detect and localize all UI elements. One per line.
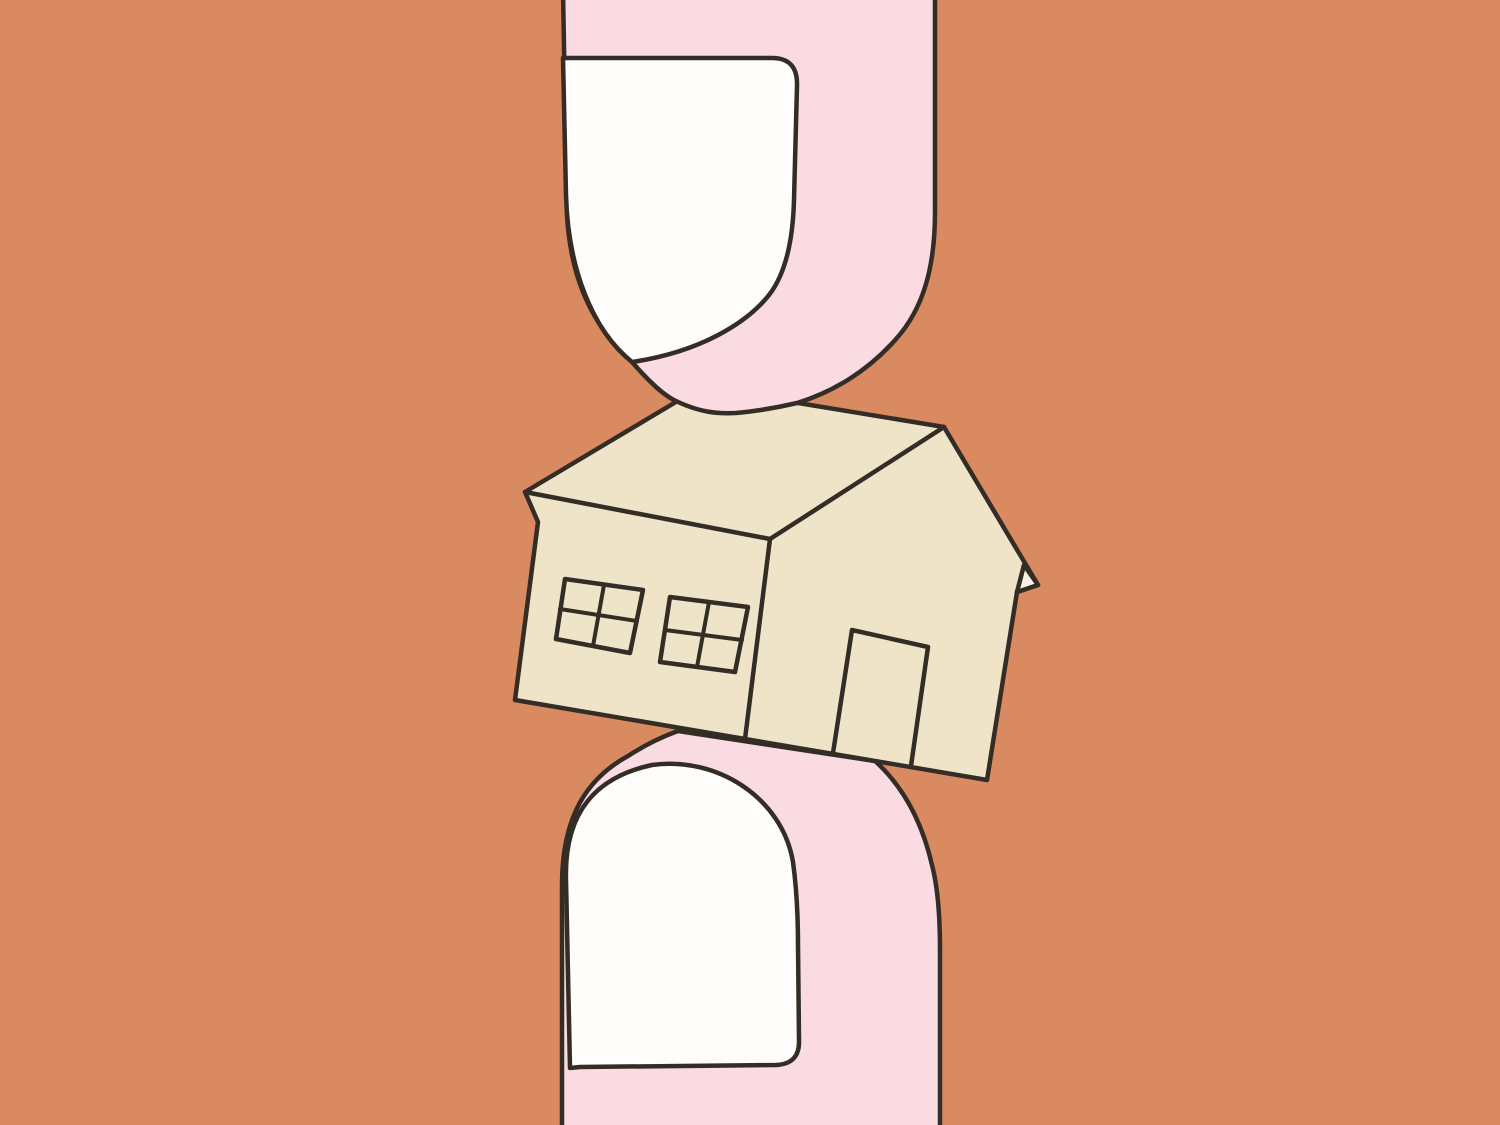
illustration-canvas <box>0 0 1500 1125</box>
bottom-fingernail-icon <box>566 764 799 1068</box>
bottom-finger <box>562 731 940 1125</box>
top-finger <box>563 0 935 413</box>
pinch-house-illustration <box>0 0 1500 1125</box>
